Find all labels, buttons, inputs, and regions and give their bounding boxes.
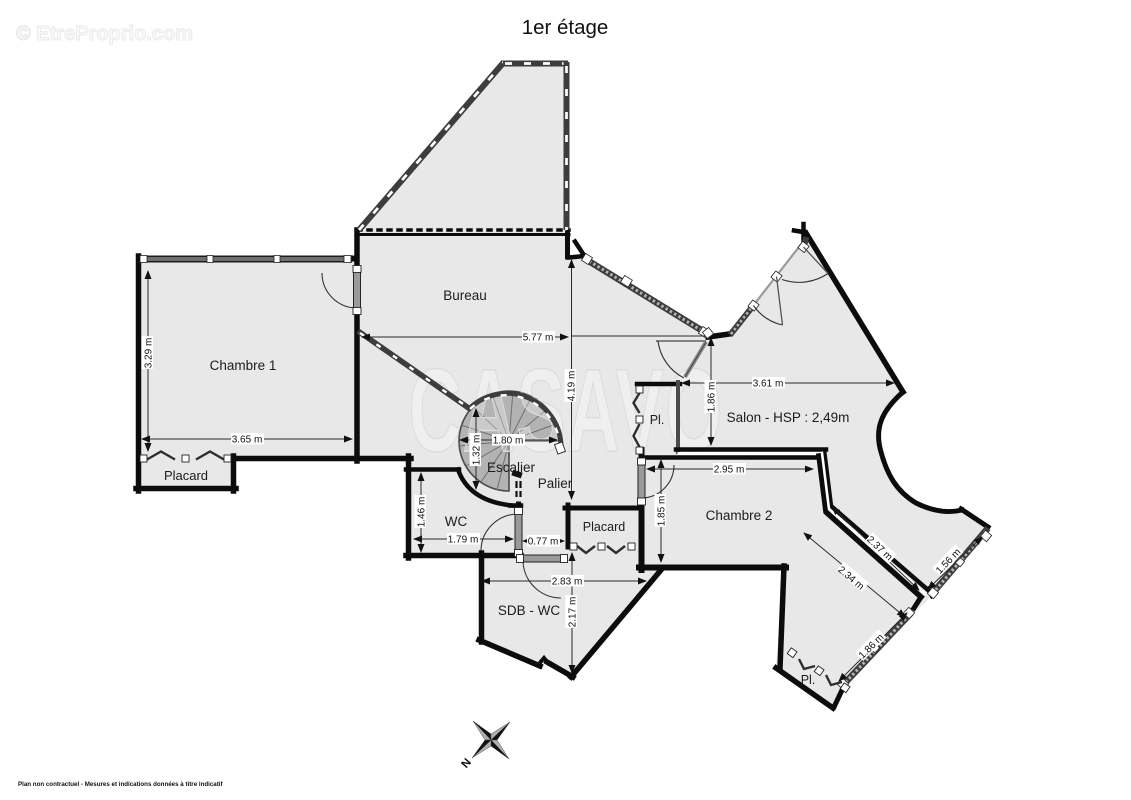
svg-text:1er étage: 1er étage: [522, 16, 609, 39]
svg-text:1.32 m: 1.32 m: [472, 435, 483, 466]
svg-text:4.19 m: 4.19 m: [567, 371, 578, 402]
svg-text:1.80 m: 1.80 m: [493, 436, 524, 447]
svg-text:Salon - HSP : 2,49m: Salon - HSP : 2,49m: [727, 410, 850, 425]
svg-text:3.65 m: 3.65 m: [232, 435, 263, 446]
svg-text:2.95 m: 2.95 m: [714, 465, 745, 476]
svg-text:1.79 m: 1.79 m: [448, 535, 479, 546]
svg-text:Palier: Palier: [538, 476, 573, 491]
svg-text:© EtreProprio.com: © EtreProprio.com: [16, 23, 193, 45]
svg-text:2.83 m: 2.83 m: [552, 577, 583, 588]
svg-text:Pl.: Pl.: [650, 413, 665, 427]
svg-text:3.61 m: 3.61 m: [753, 379, 784, 390]
svg-text:Chambre 1: Chambre 1: [210, 358, 277, 373]
svg-text:Escalier: Escalier: [487, 460, 536, 475]
svg-text:Placard: Placard: [583, 520, 625, 534]
svg-text:1.46 m: 1.46 m: [417, 497, 428, 528]
svg-text:3.29 m: 3.29 m: [144, 338, 155, 369]
svg-text:1.85 m: 1.85 m: [657, 496, 668, 527]
svg-text:1.86 m: 1.86 m: [707, 382, 718, 413]
svg-text:Placard: Placard: [164, 468, 208, 483]
svg-text:Bureau: Bureau: [443, 288, 487, 303]
svg-text:Chambre 2: Chambre 2: [706, 508, 773, 523]
svg-text:5.77 m: 5.77 m: [523, 333, 554, 344]
svg-text:WC: WC: [445, 514, 468, 529]
svg-text:Plan non contractuel - Mesures: Plan non contractuel - Mesures et indica…: [18, 781, 224, 788]
svg-text:SDB - WC: SDB - WC: [498, 603, 560, 618]
svg-text:0.77 m: 0.77 m: [528, 537, 559, 548]
svg-text:2.17 m: 2.17 m: [568, 597, 579, 628]
svg-text:Pl.: Pl.: [801, 673, 816, 687]
